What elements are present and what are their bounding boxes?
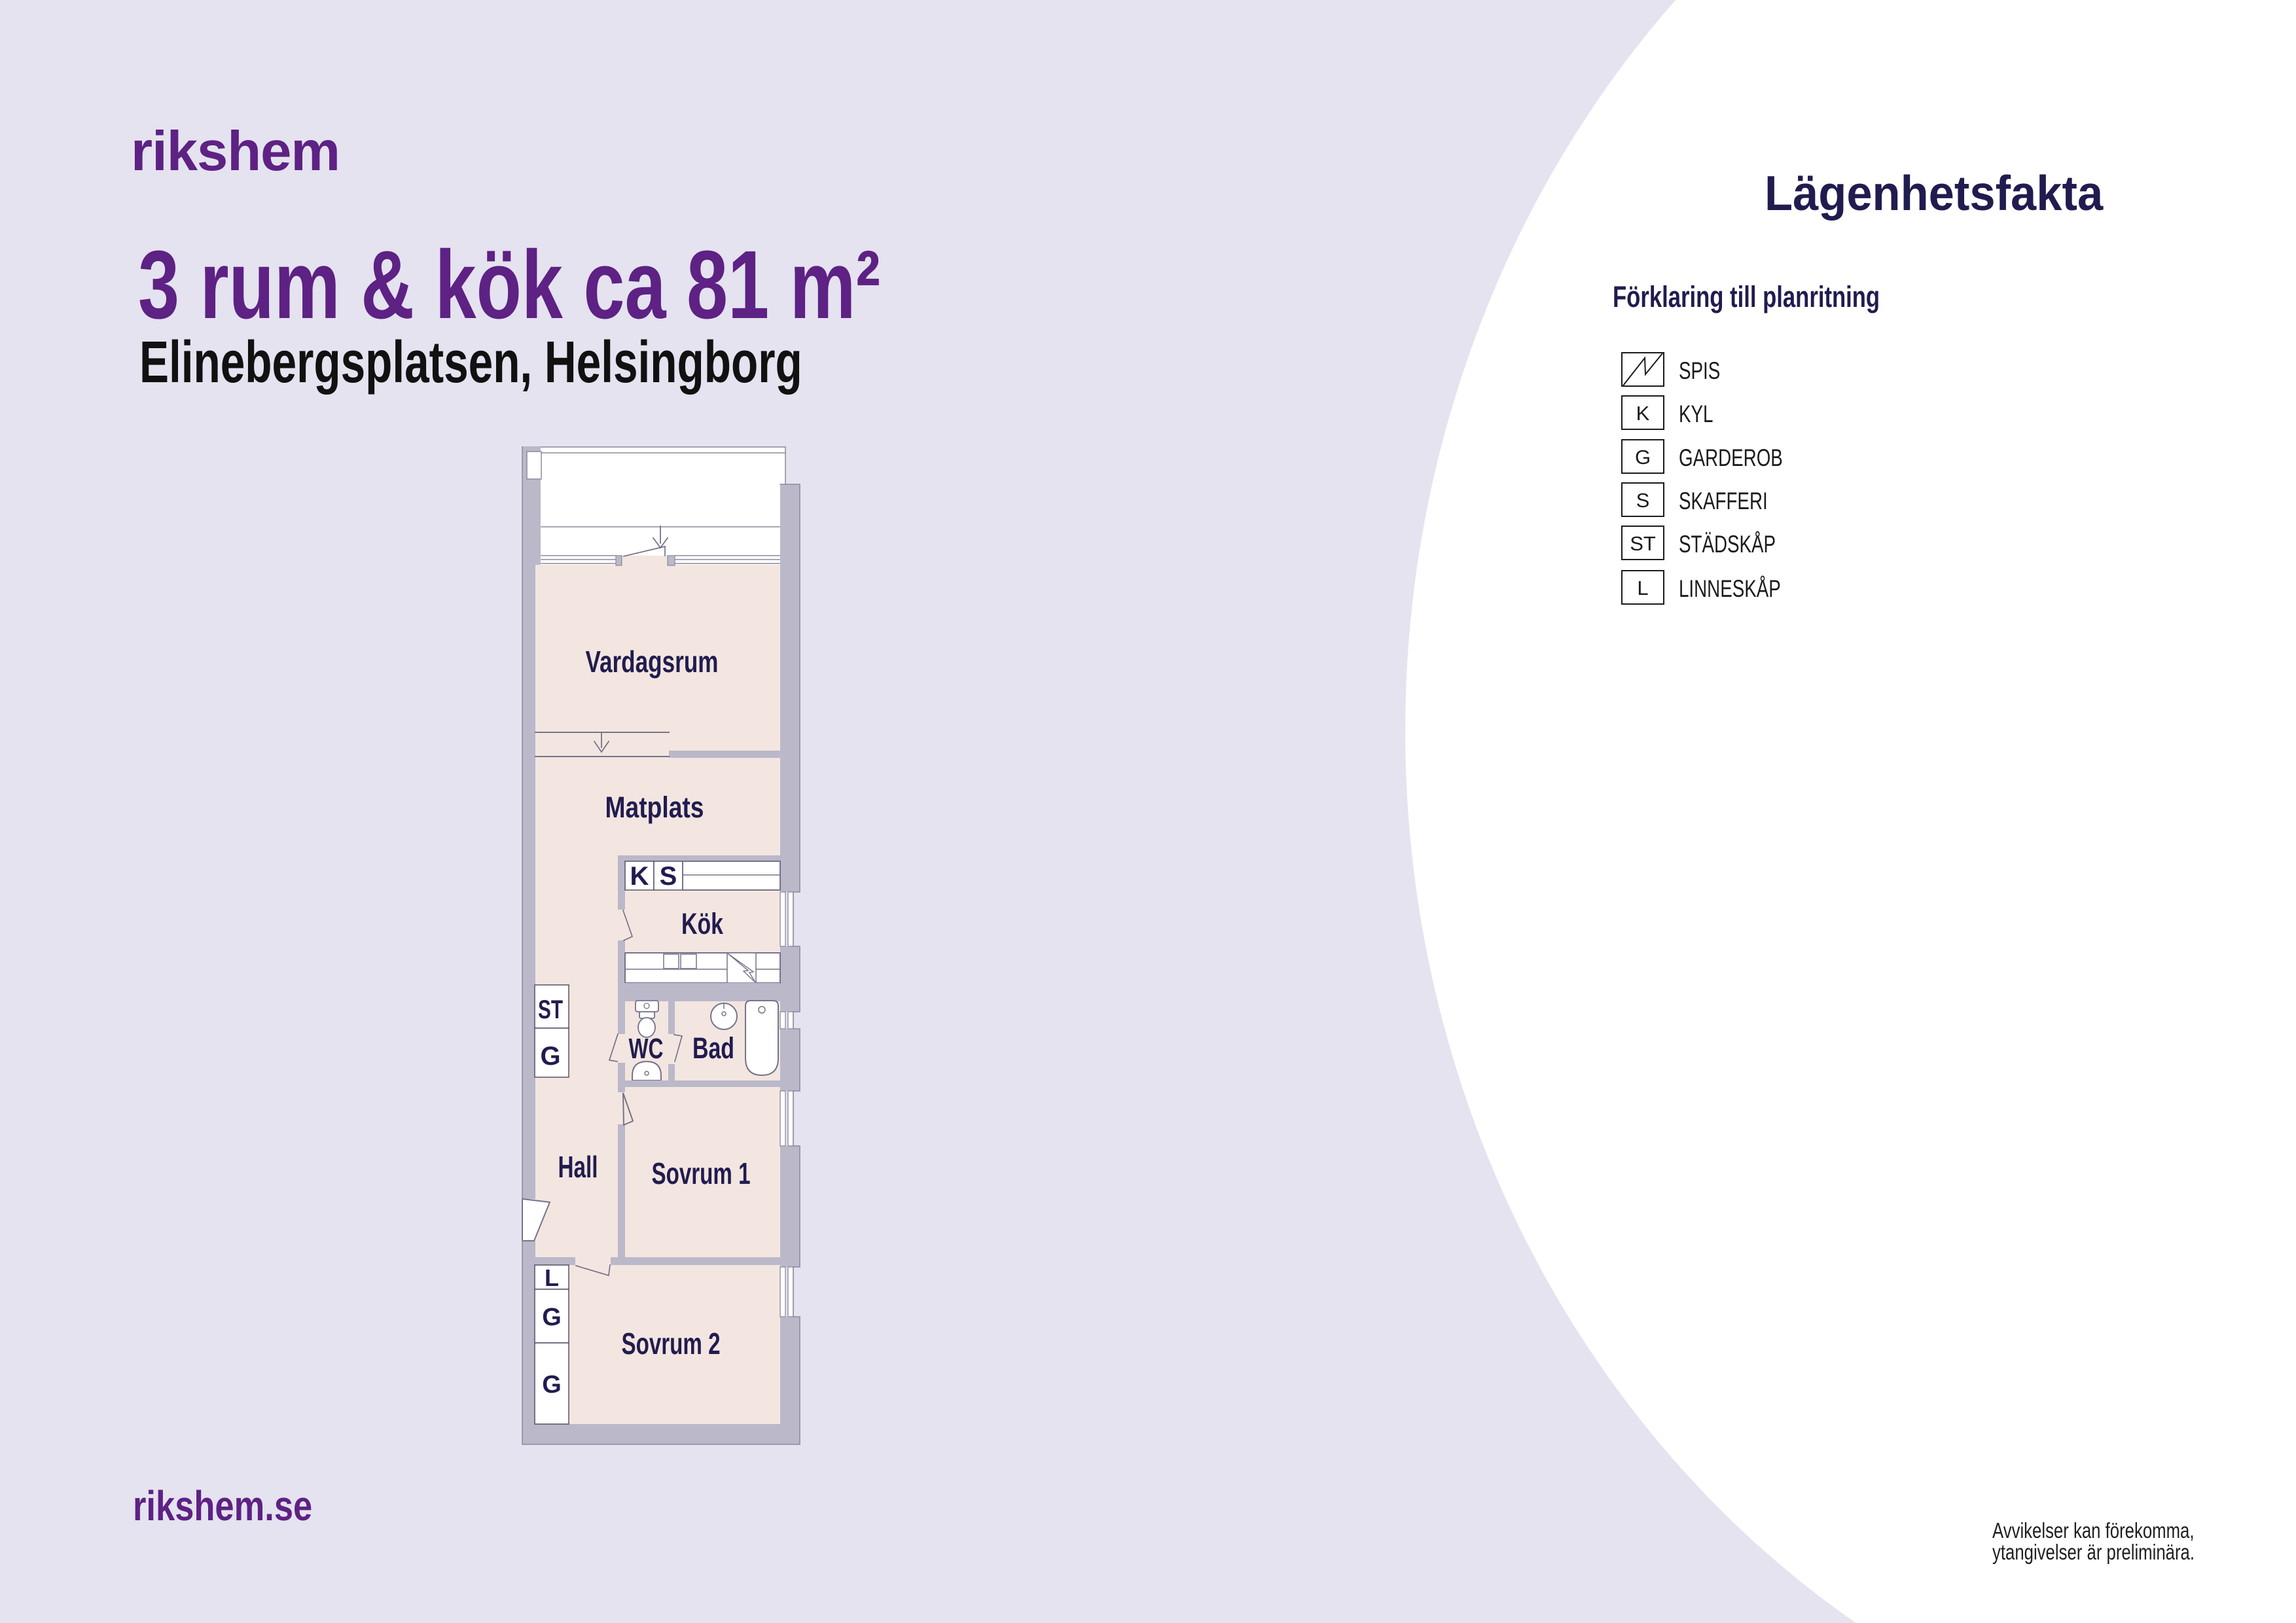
svg-text:Vardagsrum: Vardagsrum bbox=[586, 645, 719, 679]
svg-text:G: G bbox=[542, 1304, 562, 1331]
svg-text:G: G bbox=[542, 1371, 562, 1399]
svg-text:Kök: Kök bbox=[681, 907, 724, 940]
svg-text:ST: ST bbox=[538, 995, 563, 1024]
svg-text:G: G bbox=[540, 1042, 560, 1071]
svg-text:WC: WC bbox=[629, 1033, 664, 1065]
svg-text:K: K bbox=[630, 862, 649, 891]
svg-text:Sovrum 1: Sovrum 1 bbox=[652, 1156, 751, 1190]
svg-text:Sovrum 2: Sovrum 2 bbox=[622, 1327, 721, 1361]
svg-text:Matplats: Matplats bbox=[605, 791, 704, 824]
svg-text:Bad: Bad bbox=[692, 1031, 734, 1065]
svg-text:S: S bbox=[660, 862, 677, 891]
svg-text:Hall: Hall bbox=[558, 1150, 598, 1184]
svg-text:L: L bbox=[545, 1264, 559, 1291]
